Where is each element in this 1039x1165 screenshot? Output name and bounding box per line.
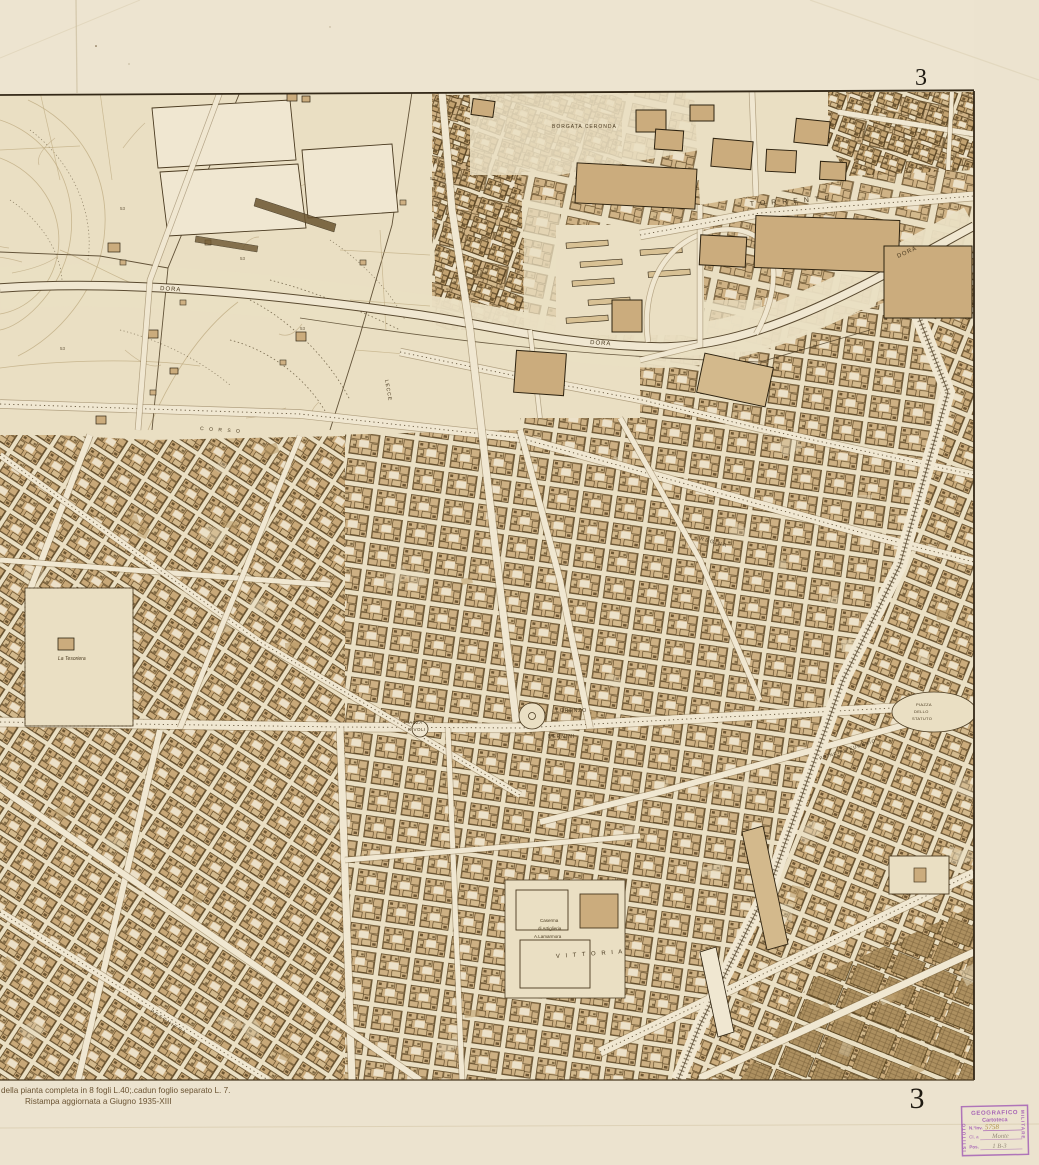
svg-text:GEOGRAFICO: GEOGRAFICO <box>971 1110 1018 1117</box>
svg-text:1 B-3: 1 B-3 <box>992 1143 1007 1150</box>
svg-text:DELLO: DELLO <box>914 709 929 714</box>
svg-text:PIAZZA: PIAZZA <box>404 720 423 725</box>
svg-text:BERNINI: BERNINI <box>548 734 575 740</box>
svg-text:Caserma: Caserma <box>540 918 559 923</box>
svg-text:STATUTO: STATUTO <box>912 716 932 721</box>
svg-text:Pos.: Pos. <box>969 1144 979 1149</box>
svg-text:RIVOLI: RIVOLI <box>408 727 426 732</box>
svg-text:La Tesoriera: La Tesoriera <box>58 656 86 662</box>
svg-text:di Artiglieria: di Artiglieria <box>538 926 562 931</box>
svg-text:BORGATA CERONDA: BORGATA CERONDA <box>552 124 617 130</box>
svg-text:53: 53 <box>300 326 306 331</box>
svg-text:PIAZZA: PIAZZA <box>916 702 932 707</box>
svg-text:Ristampa aggiornata a Giugno 1: Ristampa aggiornata a Giugno 1935-XIII <box>25 1097 172 1106</box>
svg-text:ISTITUTO: ISTITUTO <box>961 1122 967 1151</box>
svg-text:LORENZO: LORENZO <box>556 708 587 714</box>
svg-text:MILITARE: MILITARE <box>1020 1110 1026 1140</box>
svg-text:Cl. a: Cl. a <box>969 1134 979 1139</box>
svg-text:53: 53 <box>120 206 126 211</box>
svg-text:53: 53 <box>240 256 246 261</box>
svg-text:3: 3 <box>915 65 927 91</box>
svg-text:5758: 5758 <box>985 1123 1000 1131</box>
svg-text:della pianta completa in 8 fog: della pianta completa in 8 fogli L.40;.c… <box>1 1086 230 1095</box>
svg-text:53: 53 <box>430 176 436 181</box>
svg-text:A.Lamarmora: A.Lamarmora <box>534 934 562 939</box>
svg-text:53: 53 <box>60 346 66 351</box>
svg-text:3: 3 <box>910 1082 925 1115</box>
svg-text:N.°Inv.: N.°Inv. <box>969 1125 983 1130</box>
